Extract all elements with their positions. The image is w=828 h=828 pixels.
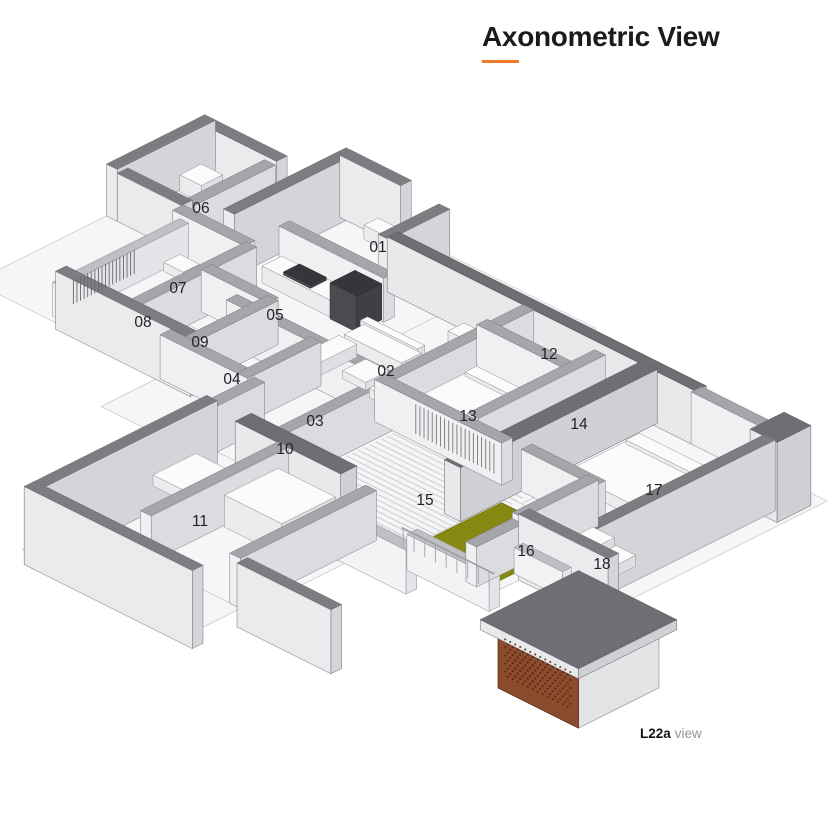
- room-label-18: 18: [593, 556, 610, 573]
- room-label-03: 03: [306, 413, 323, 430]
- room-label-06: 06: [192, 200, 209, 217]
- view-caption-code: L22a: [640, 726, 671, 741]
- room-label-12: 12: [540, 346, 557, 363]
- room-label-17: 17: [645, 482, 662, 499]
- room-label-01: 01: [369, 239, 386, 256]
- room-label-07: 07: [169, 280, 186, 297]
- room-label-05: 05: [266, 307, 283, 324]
- room-label-02: 02: [377, 363, 394, 380]
- view-caption-word: view: [675, 726, 702, 741]
- room-label-09: 09: [191, 334, 208, 351]
- room-label-16: 16: [517, 543, 534, 560]
- room-label-13: 13: [459, 408, 476, 425]
- room-label-11: 11: [192, 513, 208, 530]
- title-underline-accent: [482, 60, 519, 63]
- room-label-14: 14: [570, 416, 588, 433]
- room-label-15: 15: [416, 492, 433, 509]
- room-label-10: 10: [276, 441, 294, 458]
- room-label-08: 08: [134, 314, 151, 331]
- page-title-block: Axonometric View: [482, 22, 719, 63]
- room-label-04: 04: [223, 371, 241, 388]
- view-caption: L22aview: [640, 726, 702, 741]
- page-title: Axonometric View: [482, 22, 719, 53]
- slide-canvas: 010203040506070809101112131415161718 Axo…: [0, 0, 828, 828]
- axonometric-floorplan-drawing: 010203040506070809101112131415161718: [0, 0, 828, 828]
